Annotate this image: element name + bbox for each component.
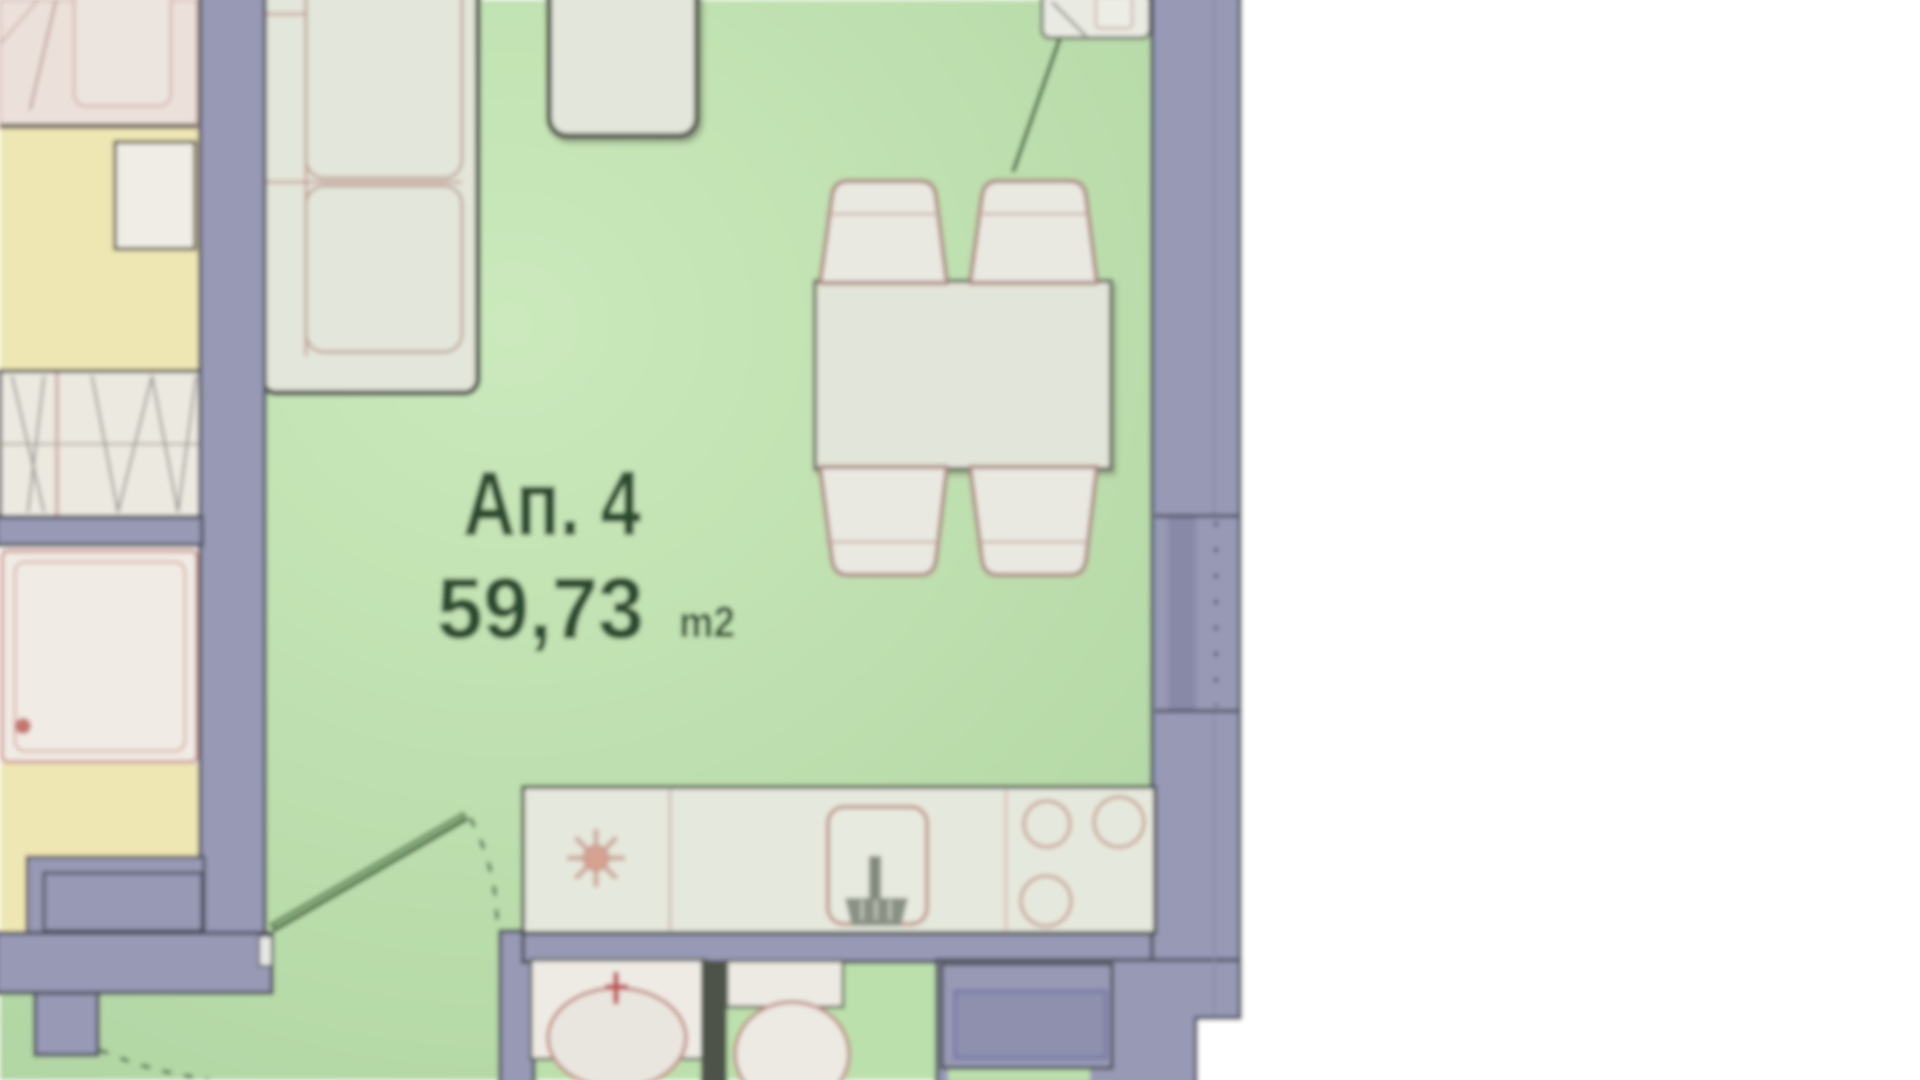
svg-text:m2: m2 — [679, 598, 735, 647]
svg-text:59,73: 59,73 — [437, 561, 644, 657]
svg-text:Ап. 4: Ап. 4 — [463, 453, 641, 555]
